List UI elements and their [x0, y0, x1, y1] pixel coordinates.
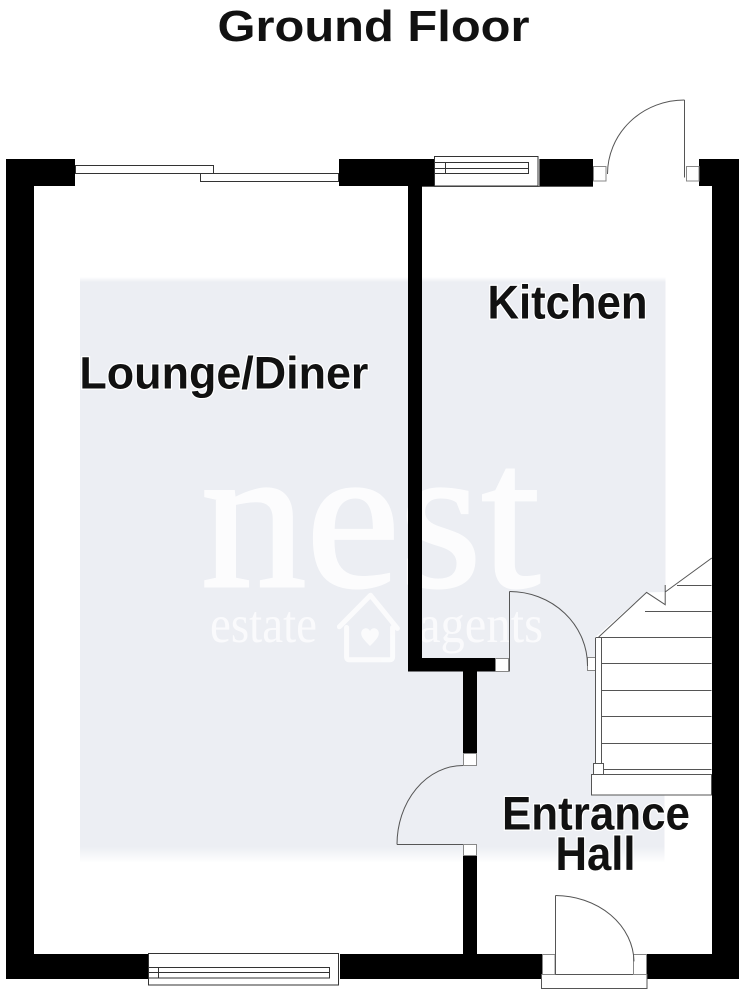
svg-text:Hall: Hall	[556, 827, 636, 880]
svg-text:estate: estate	[210, 596, 317, 654]
svg-text:agents: agents	[419, 596, 543, 654]
svg-text:Lounge/Diner: Lounge/Diner	[79, 348, 368, 399]
svg-text:Kitchen: Kitchen	[488, 276, 648, 329]
svg-text:Ground Floor: Ground Floor	[218, 2, 530, 51]
